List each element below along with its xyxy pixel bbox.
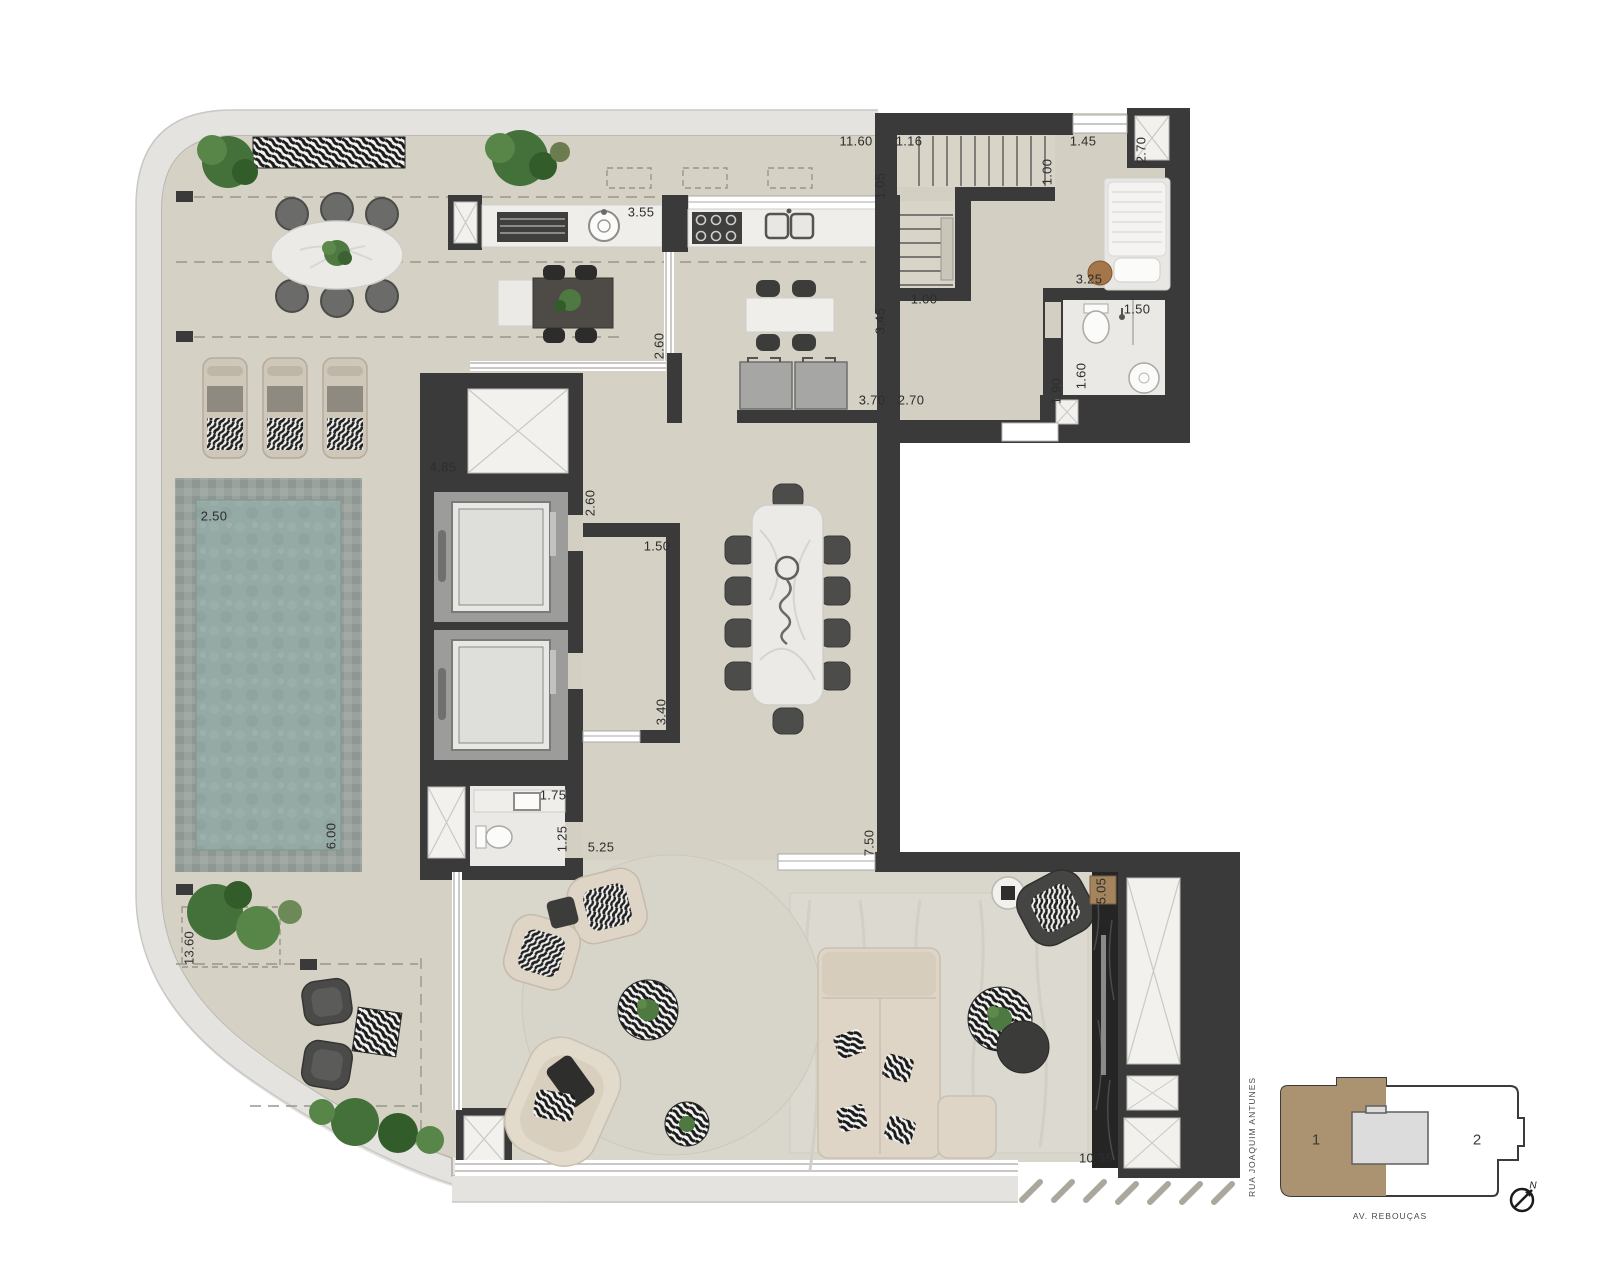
elevator-2 (434, 630, 568, 760)
dim-label: 1.60 (1074, 363, 1089, 390)
zebra-table-1 (618, 980, 678, 1040)
floor-plan-page: 11.60 1.16 1.45 2.70 1.05 1.00 3.55 3.45… (0, 0, 1600, 1263)
toilet (476, 826, 512, 848)
round-sink (589, 211, 619, 241)
dim-label: 1.25 (555, 826, 570, 853)
zebra-rug-top (253, 137, 405, 168)
marble-wall (1090, 872, 1118, 1168)
dim-label: 3.25 (1076, 272, 1103, 287)
outdoor-dining-set (271, 193, 403, 317)
shaft-living-left (464, 1116, 504, 1162)
zebra-table-2 (665, 1102, 709, 1146)
dim-label: 7.50 (862, 830, 877, 857)
dim-label: 1.90 (1049, 378, 1064, 405)
key-plan-unit2-number: 2 (1473, 1132, 1481, 1149)
hatch-strip (1022, 1182, 1232, 1202)
dim-label: 3.55 (628, 205, 655, 220)
elevator-1 (434, 492, 568, 622)
dim-label: 10.35 (1079, 1151, 1113, 1166)
dim-label: 1.05 (873, 173, 888, 200)
dim-label: 1.00 (911, 292, 938, 307)
shaft-right-small1 (1127, 1076, 1178, 1110)
north-label: N (1529, 1181, 1536, 1192)
dim-label: 2.70 (898, 393, 925, 408)
street-name-left: RUA JOAQUIM ANTUNES (1247, 1077, 1257, 1197)
void-area (900, 443, 1190, 852)
dark-coffee-table (997, 1021, 1049, 1073)
shaft-powder (428, 787, 465, 858)
round-sink (1129, 363, 1159, 393)
dim-label: 1.00 (1040, 159, 1055, 186)
shaft-right-small2 (1124, 1118, 1180, 1168)
dim-label: 3.70 (859, 393, 886, 408)
living-room (494, 855, 1118, 1177)
north-compass-icon (1511, 1189, 1533, 1211)
dim-label: 1.16 (896, 134, 923, 149)
dim-label: 3.45 (873, 308, 888, 335)
dim-label: 5.25 (588, 840, 615, 855)
dim-label: 2.60 (583, 490, 598, 517)
key-plan-unit1-number: 1 (1312, 1132, 1320, 1149)
kitchen-island (746, 298, 834, 332)
shaft-right-large (1127, 878, 1180, 1064)
dim-label: 2.70 (1134, 137, 1149, 164)
bottom-band (452, 1176, 1018, 1202)
street-name-bottom: AV. REBOUÇAS (1353, 1211, 1427, 1221)
toilet (1083, 304, 1109, 343)
dim-label: 13.60 (182, 931, 197, 965)
dim-label: 2.60 (652, 333, 667, 360)
pillow (1114, 258, 1160, 282)
shaft-core-large (468, 389, 568, 473)
sun-loungers (203, 358, 367, 458)
dim-label: 5.05 (1094, 878, 1109, 905)
dim-label: 3.40 (654, 699, 669, 726)
key-plan-core (1352, 1112, 1428, 1164)
dim-label: 1.50 (644, 539, 671, 554)
dim-label: 1.50 (1124, 302, 1151, 317)
dim-label: 2.50 (201, 509, 228, 524)
dim-label: 6.00 (324, 823, 339, 850)
dim-label: 1.45 (1070, 134, 1097, 149)
service-door (1002, 423, 1058, 441)
dim-label: 11.60 (839, 134, 872, 149)
floor-plan-drawing (0, 0, 1600, 1263)
dim-label: 1.75 (540, 788, 567, 803)
pool (175, 478, 362, 872)
dim-label: 4.85 (430, 460, 457, 475)
